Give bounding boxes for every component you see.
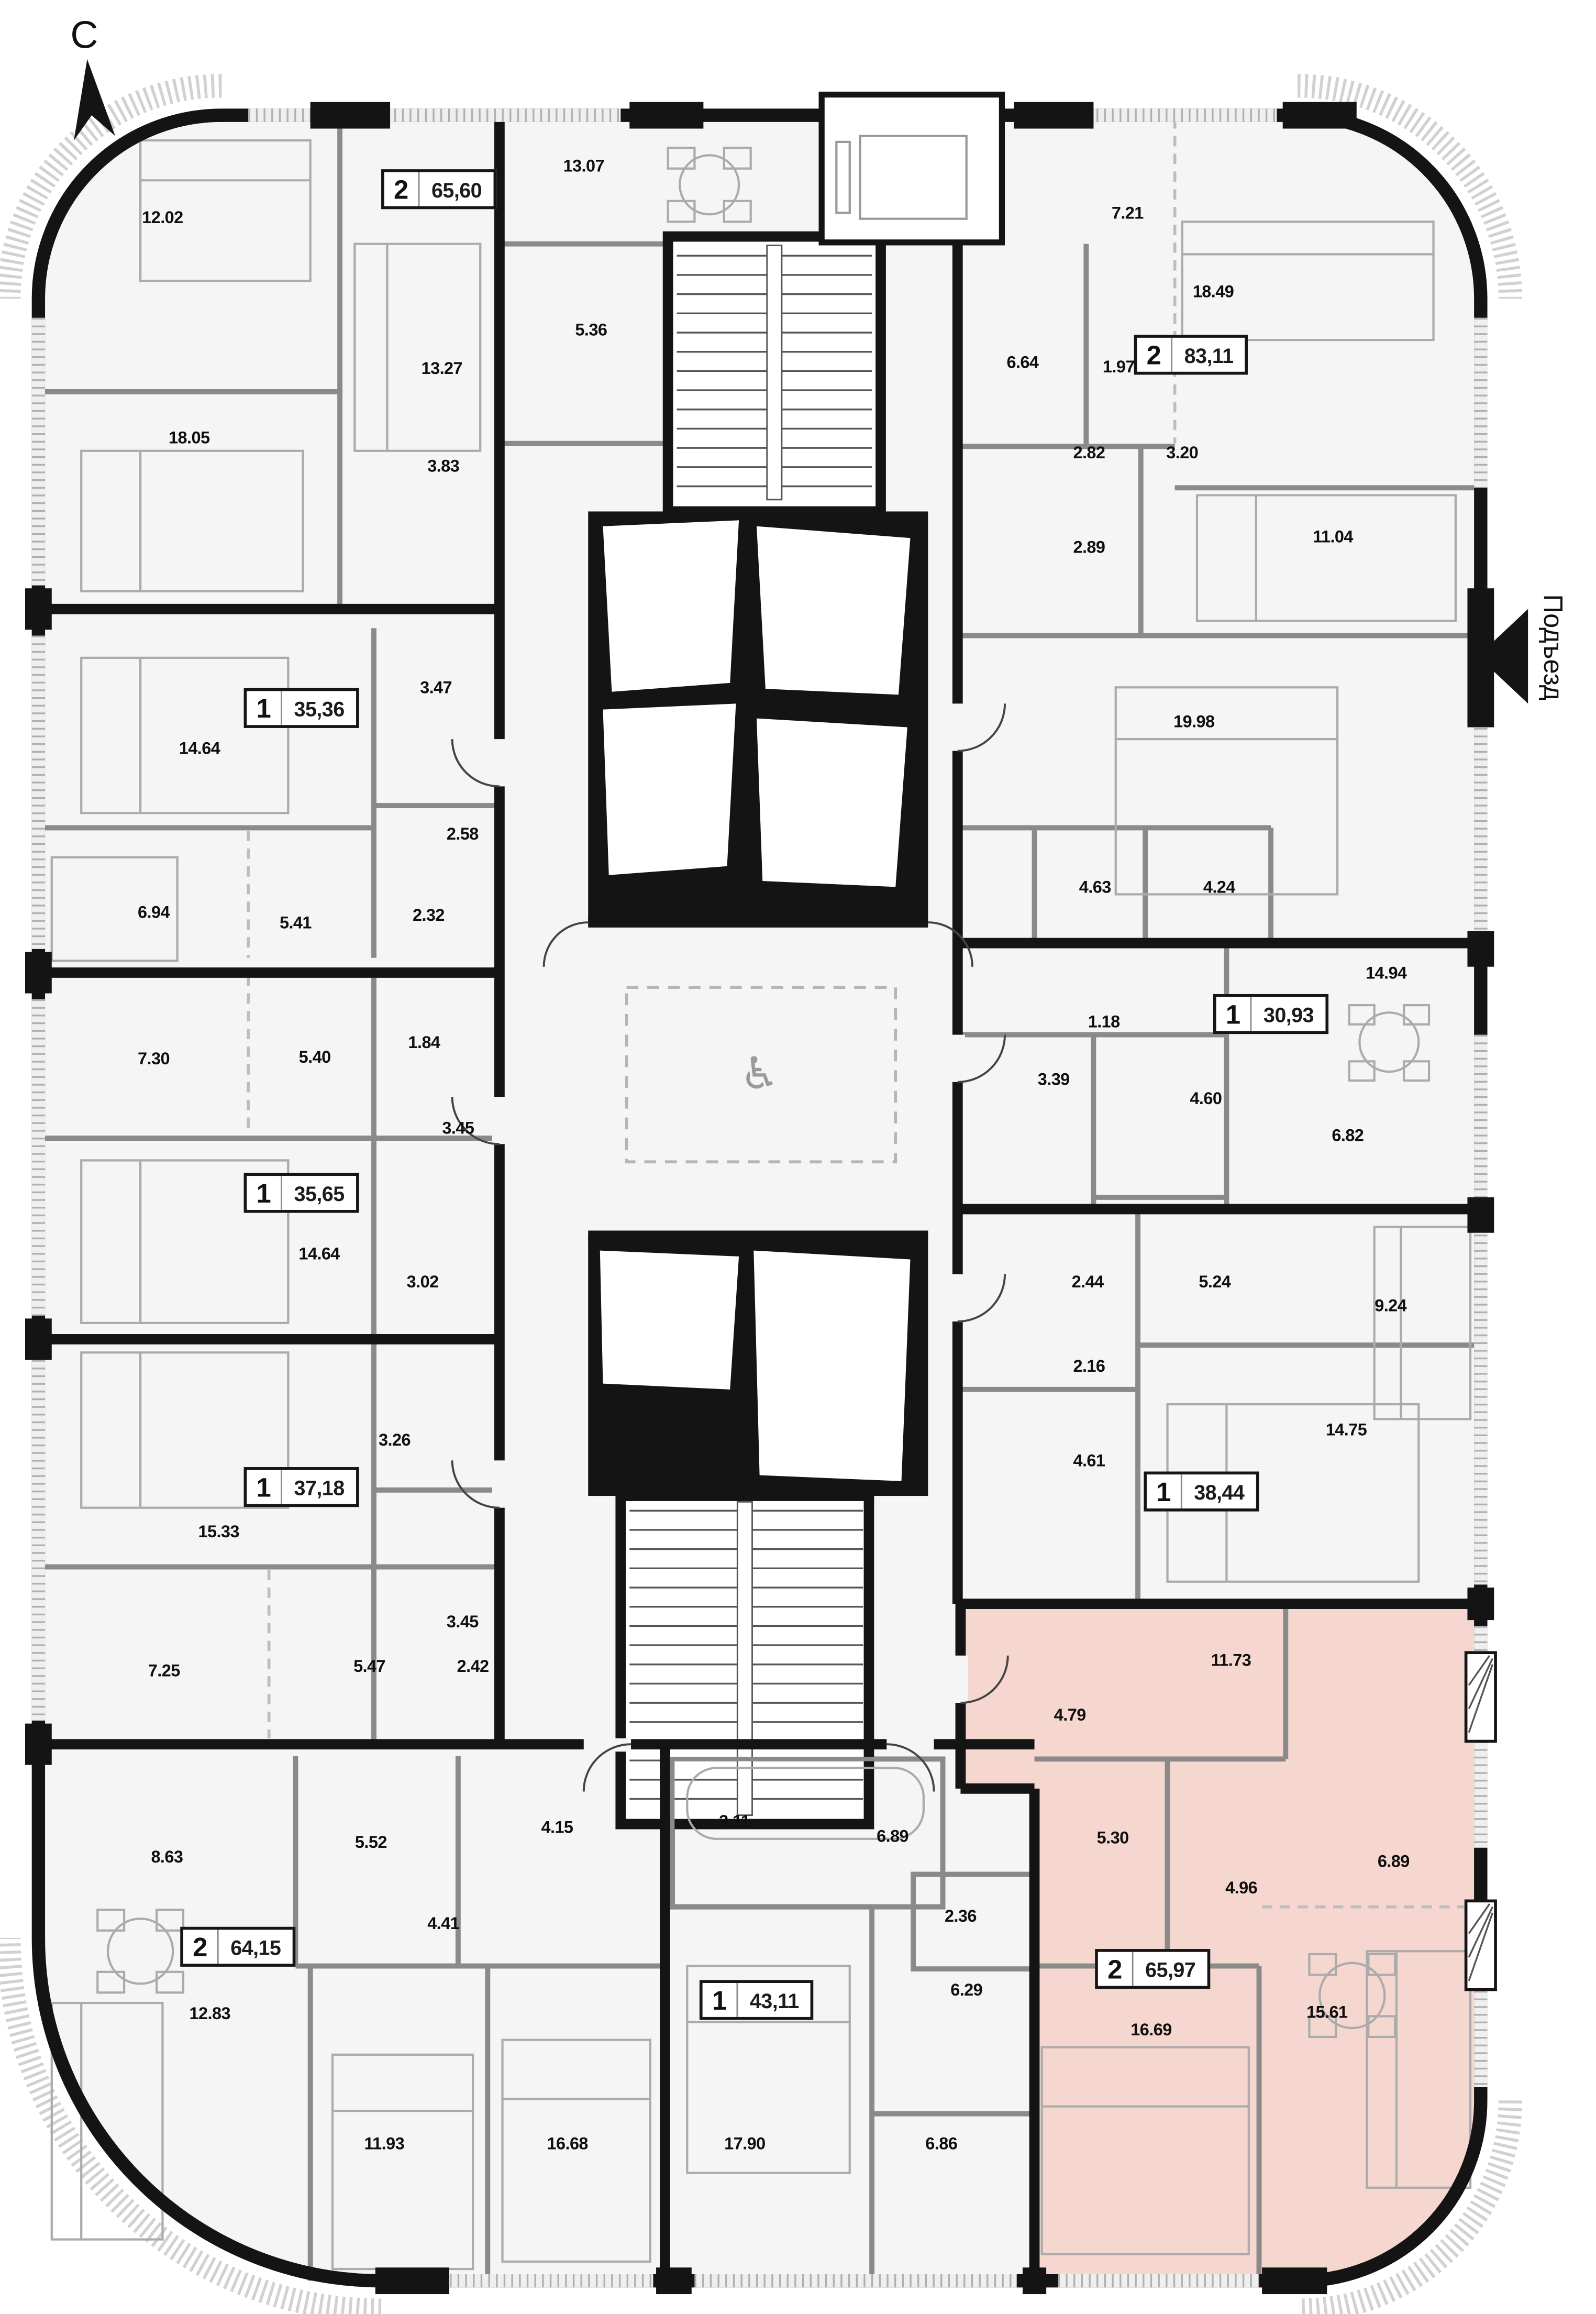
room-area-label: 3.02 — [407, 1274, 439, 1292]
apartment-badge-30-93[interactable]: 130,93 — [1213, 994, 1328, 1034]
room-area-label: 18.49 — [1193, 284, 1234, 302]
apartment-area: 30,93 — [1251, 997, 1325, 1031]
room-area-label: 3.26 — [379, 1433, 411, 1450]
floorplan-page: С Подъезд ♿ 265,60 283,11 135,36 130,93 … — [0, 0, 1596, 2314]
room-area-label: 1.18 — [1088, 1014, 1120, 1032]
room-area-label: 16.68 — [547, 2136, 588, 2154]
apartment-badge-38-44[interactable]: 138,44 — [1144, 1472, 1259, 1512]
room-area-label: 14.75 — [1326, 1422, 1367, 1440]
apartment-rooms-count: 2 — [183, 1930, 219, 1964]
apartment-badge-35-36[interactable]: 135,36 — [244, 688, 359, 728]
apartment-rooms-count: 2 — [1098, 1952, 1134, 1986]
room-area-label: 11.93 — [364, 2136, 404, 2154]
room-area-label: 12.83 — [190, 2006, 230, 2024]
room-area-label: 14.64 — [298, 1246, 339, 1264]
room-area-label: 6.64 — [1006, 355, 1038, 372]
room-area-label: 5.41 — [280, 915, 312, 933]
room-area-label: 6.82 — [1332, 1128, 1364, 1145]
apartment-rooms-count: 1 — [247, 691, 282, 725]
room-area-label: 19.98 — [1173, 714, 1214, 732]
room-area-label: 6.29 — [950, 1982, 982, 2000]
room-area-label: 6.94 — [138, 905, 170, 922]
room-area-label: 17.90 — [724, 2136, 765, 2154]
room-area-label: 6.86 — [925, 2136, 957, 2154]
apartment-area: 65,60 — [419, 172, 493, 206]
room-area-label: 3.83 — [427, 458, 459, 476]
apartment-badge-35-65[interactable]: 135,65 — [244, 1173, 359, 1213]
room-area-label: 2.36 — [945, 1908, 977, 1926]
room-area-label: 3.45 — [442, 1120, 474, 1138]
apartment-badge-65-60[interactable]: 265,60 — [381, 169, 496, 209]
room-area-label: 2.16 — [1073, 1359, 1105, 1376]
room-area-label: 3.45 — [447, 1614, 479, 1632]
room-area-label: 5.30 — [1097, 1830, 1129, 1848]
room-area-label: 12.02 — [142, 210, 183, 228]
room-area-label: 16.69 — [1130, 2022, 1171, 2040]
room-area-label: 13.07 — [563, 158, 604, 176]
room-area-label: 6.89 — [877, 1828, 908, 1846]
room-area-label: 2.89 — [1073, 539, 1105, 557]
room-area-label: 13.27 — [422, 361, 462, 379]
apartment-badge-37-18[interactable]: 137,18 — [244, 1467, 359, 1507]
room-area-label: 5.24 — [1199, 1274, 1231, 1292]
apartment-rooms-count: 1 — [1147, 1474, 1182, 1508]
room-area-label: 2.58 — [447, 827, 479, 844]
room-area-label: 14.94 — [1366, 965, 1406, 983]
top-service-room — [822, 95, 1002, 243]
room-area-label: 14.64 — [179, 741, 220, 758]
floor-plan-drawing — [0, 0, 1596, 2314]
room-area-label: 7.21 — [1112, 205, 1144, 223]
room-area-label: 4.79 — [1054, 1707, 1086, 1725]
room-area-label: 11.04 — [1313, 529, 1353, 547]
room-area-label: 3.20 — [1166, 445, 1198, 462]
room-area-label: 4.61 — [1073, 1453, 1105, 1471]
room-area-label: 6.89 — [1378, 1854, 1410, 1871]
room-area-label: 3.47 — [420, 680, 452, 698]
room-area-label: 5.47 — [353, 1659, 385, 1677]
floorplan-canvas: С Подъезд ♿ 265,60 283,11 135,36 130,93 … — [0, 0, 1596, 2314]
room-area-label: 4.63 — [1079, 879, 1111, 897]
apartment-area: 64,15 — [219, 1930, 293, 1964]
apartment-rooms-count: 1 — [247, 1470, 282, 1504]
room-area-label: 18.05 — [169, 430, 209, 448]
room-area-label: 15.61 — [1306, 2004, 1347, 2022]
entrance-label: Подъезд — [1537, 594, 1568, 701]
room-area-label: 4.60 — [1190, 1091, 1222, 1109]
room-area-label: 3.11 — [719, 1814, 750, 1832]
compass-north-letter: С — [70, 13, 98, 58]
room-area-label: 3.39 — [1038, 1072, 1070, 1089]
apartment-badge-43-11[interactable]: 143,11 — [700, 1980, 814, 2020]
room-area-label: 8.63 — [151, 1849, 183, 1867]
apartment-area: 35,65 — [282, 1176, 356, 1210]
room-area-label: 2.32 — [413, 908, 445, 925]
apartment-area: 65,97 — [1134, 1952, 1207, 1986]
wheelchair-icon: ♿ — [740, 1049, 780, 1100]
room-area-label: 2.42 — [457, 1659, 489, 1677]
room-area-label: 1.84 — [408, 1035, 440, 1053]
room-area-label: 5.52 — [355, 1834, 387, 1852]
room-area-label: 2.44 — [1072, 1274, 1104, 1292]
apartment-rooms-count: 2 — [1137, 338, 1172, 372]
apartment-area: 83,11 — [1172, 338, 1245, 372]
north-arrow-icon — [74, 59, 115, 140]
apartment-area: 37,18 — [282, 1470, 356, 1504]
room-area-label: 4.24 — [1203, 879, 1235, 897]
room-area-label: 7.25 — [148, 1663, 180, 1681]
apartment-badge-65-97-selected[interactable]: 265,97 — [1095, 1949, 1210, 1989]
apartment-area: 35,36 — [282, 691, 356, 725]
apartment-area: 38,44 — [1182, 1474, 1256, 1508]
apartment-rooms-count: 1 — [247, 1176, 282, 1210]
apartment-rooms-count: 1 — [1216, 997, 1252, 1031]
room-area-label: 5.36 — [575, 322, 607, 340]
apartment-rooms-count: 1 — [703, 1983, 738, 2017]
apartment-rooms-count: 2 — [384, 172, 420, 206]
room-area-label: 4.96 — [1225, 1880, 1257, 1898]
room-area-label: 11.73 — [1211, 1652, 1251, 1670]
room-area-label: 5.40 — [299, 1050, 331, 1067]
apartment-badge-83-11[interactable]: 283,11 — [1134, 335, 1248, 374]
room-area-label: 9.24 — [1375, 1298, 1406, 1316]
room-area-label: 15.33 — [198, 1524, 239, 1542]
room-area-label: 7.30 — [138, 1051, 170, 1069]
room-area-label: 1.97 — [1103, 359, 1135, 377]
apartment-area: 43,11 — [738, 1983, 811, 2017]
room-area-label: 4.15 — [541, 1820, 573, 1837]
room-area-label: 2.82 — [1073, 445, 1105, 462]
room-area-label: 4.41 — [427, 1916, 459, 1934]
apartment-badge-64-15[interactable]: 264,15 — [180, 1927, 295, 1967]
